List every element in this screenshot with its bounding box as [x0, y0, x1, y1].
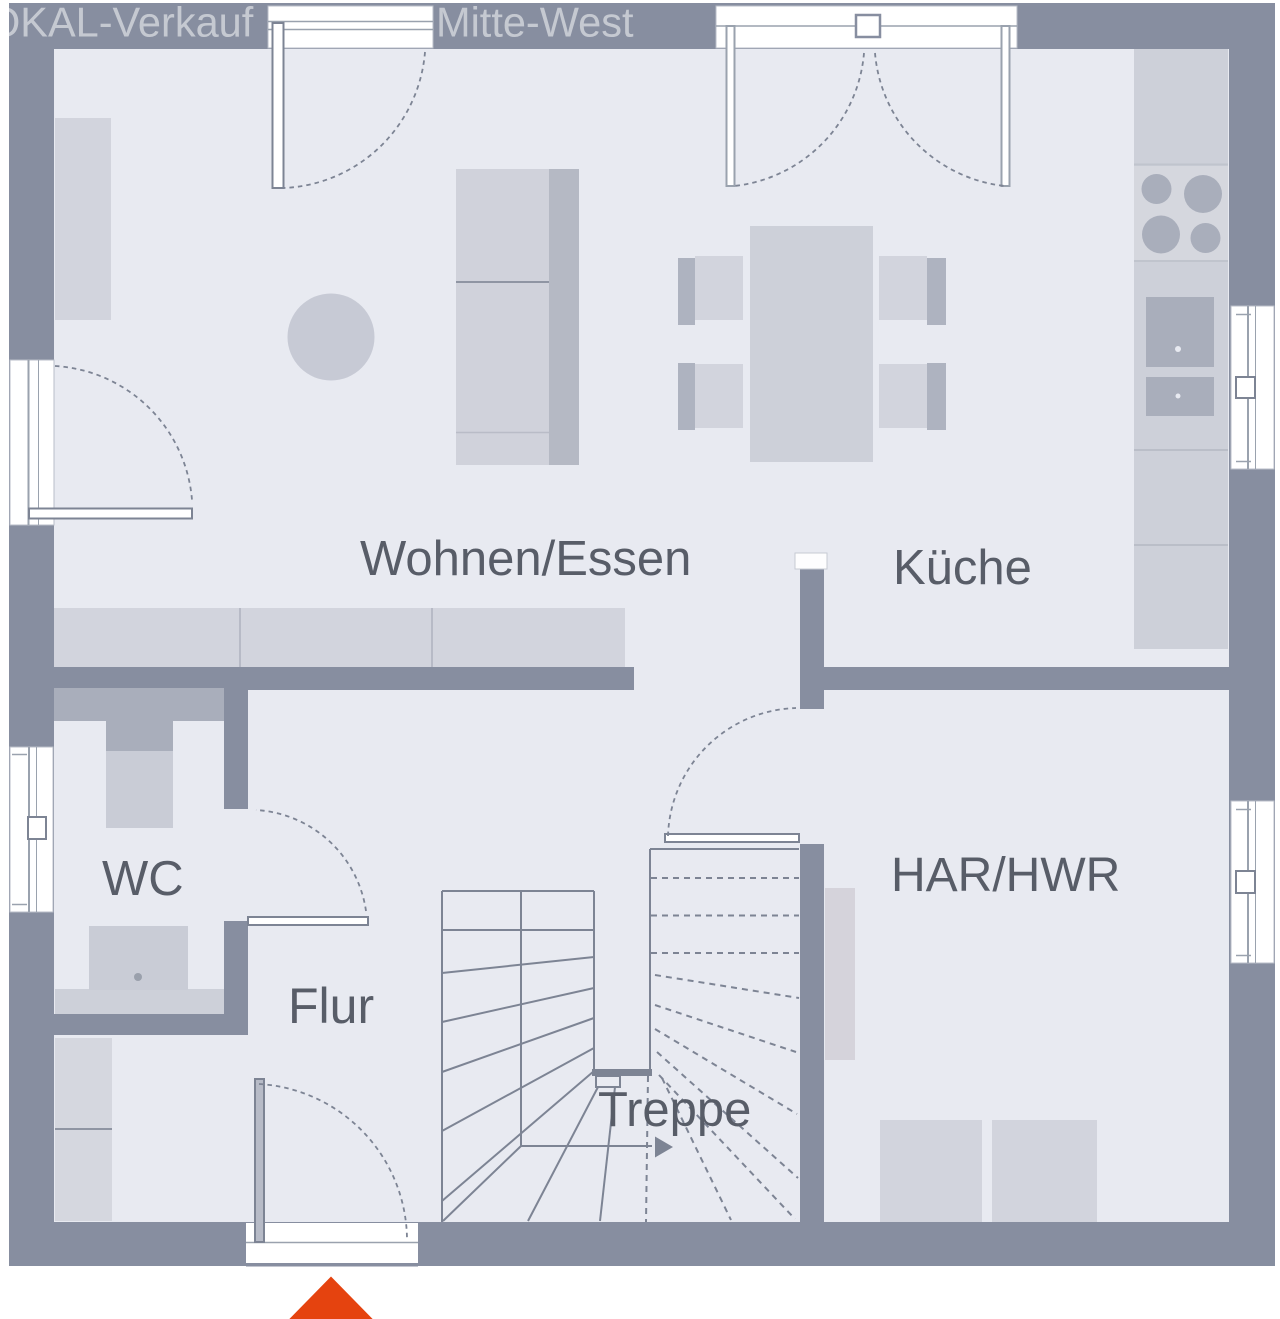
svg-text:Flur: Flur [288, 978, 374, 1034]
svg-text:Mitte-West: Mitte-West [436, 0, 634, 46]
svg-text:Küche: Küche [893, 541, 1032, 595]
svg-text:OKAL-Verkauf: OKAL-Verkauf [0, 0, 254, 46]
svg-text:HAR/HWR: HAR/HWR [891, 849, 1120, 902]
svg-text:WC: WC [102, 852, 184, 906]
svg-text:Treppe: Treppe [598, 1083, 751, 1137]
svg-text:Wohnen/Essen: Wohnen/Essen [360, 532, 691, 586]
